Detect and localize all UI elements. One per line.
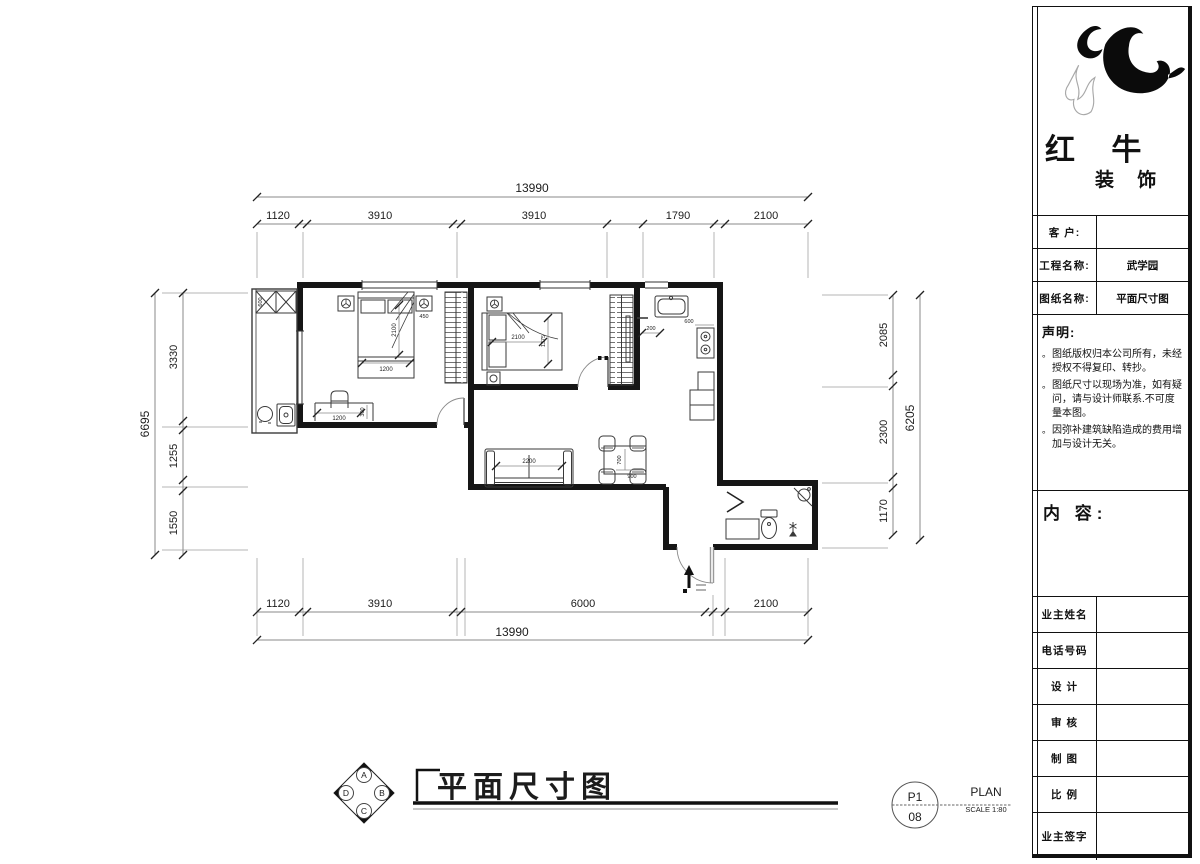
bullet-marker: 。 <box>1042 379 1052 421</box>
customer-value <box>1097 216 1188 248</box>
drawing-name-label: 图纸名称: <box>1033 282 1097 314</box>
dim-label: 2100 <box>392 323 398 337</box>
bathroom-door-symbol <box>727 492 743 512</box>
extension-lines <box>162 232 888 636</box>
content-section: 内 容: <box>1033 491 1188 597</box>
dim-chain-right: 2085 2300 1170 6205 <box>878 291 924 544</box>
drawing-title-block: 平面尺寸图 <box>413 770 838 809</box>
field-scale: 比 例 <box>1033 777 1188 813</box>
dim-label: 2100 <box>754 598 778 610</box>
dim-label: 1550 <box>168 511 180 535</box>
bullet-marker: 。 <box>1042 348 1052 376</box>
dim-chain-left: 6695 3330 1255 1550 <box>138 289 187 559</box>
bed-double-2: 2100 1375 <box>482 313 562 370</box>
dim-chain-top: 13990 1120 3910 3910 1790 2100 <box>253 181 812 228</box>
field-reviewer: 审 核 <box>1033 705 1188 741</box>
sofa: 2200 <box>485 449 573 487</box>
field-drafter: 制 图 <box>1033 741 1188 777</box>
dim-label: 1170 <box>878 499 890 523</box>
statement-item: 。 图纸版权归本公司所有，未经授权不得复印、转抄。 <box>1042 348 1182 376</box>
kitchen-cabinets <box>690 372 714 420</box>
dim-label: 900 <box>627 474 636 480</box>
bed-double: 2100 1200 <box>358 292 414 378</box>
dim-label: 3910 <box>368 598 392 610</box>
field-phone: 电话号码 <box>1033 633 1188 669</box>
dim-label: 1255 <box>168 444 180 468</box>
bullet-marker: 。 <box>1042 424 1052 452</box>
dim-label: 3330 <box>168 345 180 369</box>
wardrobe-bedroom2 <box>610 295 633 385</box>
corner-basin <box>794 488 812 506</box>
dim-label: 6205 <box>903 404 917 431</box>
dim-label: 2200 <box>522 459 536 465</box>
compass-icon: A B C D <box>334 763 394 823</box>
desk-and-chair: 1200 300 <box>313 391 373 422</box>
kitchen: 200 600 <box>637 296 714 420</box>
bull-horn-left <box>1077 26 1102 58</box>
kitchen-sink <box>655 296 688 317</box>
living-room: 2200 700 900 <box>485 436 646 487</box>
toilet <box>761 510 777 539</box>
dim-label: 300 <box>360 407 366 416</box>
field-designer: 设 计 <box>1033 669 1188 705</box>
balcony: 600 <box>252 289 297 433</box>
walls <box>297 282 818 550</box>
dim-label: 6000 <box>571 598 595 610</box>
dim-label: 2100 <box>511 335 525 341</box>
drawing-title: 平面尺寸图 <box>437 771 617 804</box>
sheet-number-block: P1 08 PLAN SCALE 1:80 <box>892 782 1012 828</box>
dim-label: 1120 <box>266 210 290 222</box>
sheet-no-top: P1 <box>908 790 923 804</box>
plan-label: PLAN <box>970 785 1001 799</box>
brand-name: 红 牛 <box>1045 125 1155 169</box>
dim-label: 1200 <box>332 416 346 422</box>
statement-title: 声明: <box>1042 322 1182 341</box>
dim-label: 1375 <box>541 335 547 347</box>
compass-letter-w: D <box>343 788 349 798</box>
bedroom2: 2100 1375 <box>482 295 633 385</box>
stool-2 <box>487 372 500 385</box>
entry-arrow-icon <box>683 565 706 593</box>
dim-label: 13990 <box>495 625 529 639</box>
dim-label: 2085 <box>878 323 890 347</box>
field-owner-signature: 业主签字 <box>1033 813 1188 860</box>
dining-set: 700 900 <box>599 436 646 484</box>
dim-label: 1200 <box>379 367 393 373</box>
dim-chain-bottom: 1120 3910 6000 2100 13990 <box>253 598 812 644</box>
entry-door <box>677 547 714 583</box>
dim-label: 450 <box>419 314 428 320</box>
nightstand-left <box>338 296 354 311</box>
dim-label: 6695 <box>138 410 152 437</box>
field-owner-name: 业主姓名 <box>1033 597 1188 633</box>
dim-label: 600 <box>258 297 264 306</box>
dim-label: 1790 <box>666 210 690 222</box>
statement-item: 。 图纸尺寸以现场为准，如有疑问，请与设计师联系.不可度量本图。 <box>1042 379 1182 421</box>
project-label: 工程名称: <box>1033 249 1097 281</box>
drawing-sheet: 13990 1120 3910 3910 1790 2100 1120 3910… <box>0 0 1200 864</box>
bull-swoosh <box>1103 27 1185 93</box>
dim-label: 2300 <box>878 420 890 444</box>
project-value: 武学园 <box>1097 249 1188 281</box>
flame-outline <box>1066 65 1095 114</box>
dim-label: 1120 <box>266 598 290 610</box>
statement-section: 声明: 。 图纸版权归本公司所有，未经授权不得复印、转抄。 。 图纸尺寸以现场为… <box>1033 315 1188 491</box>
bedroom2-door <box>578 356 608 387</box>
compass-letter-e: B <box>379 788 385 798</box>
compass-letter-n: A <box>361 770 367 780</box>
dim-label: 3910 <box>522 210 546 222</box>
statement-item: 。 因弥补建筑缺陷造成的费用增加与设计无关。 <box>1042 424 1182 452</box>
field-drawing-name: 图纸名称: 平面尺寸图 <box>1033 282 1188 315</box>
laundry-sink <box>258 407 273 424</box>
dim-label: 700 <box>617 455 623 464</box>
wardrobe-bedroom1 <box>445 292 467 383</box>
dim-label: 3910 <box>368 210 392 222</box>
dim-label: 2100 <box>754 210 778 222</box>
dim-label: 13990 <box>515 181 549 195</box>
washing-machine <box>277 404 295 426</box>
bedroom1: 2100 1200 450 1200 300 <box>313 292 467 422</box>
title-block: 红 牛 装 饰 客 户: 工程名称: 武学园 图纸名称: 平面尺寸图 声明: 。… <box>1032 6 1192 858</box>
shower-symbol <box>790 522 797 536</box>
drawing-name-value: 平面尺寸图 <box>1097 282 1188 314</box>
stove: 600 <box>684 319 714 358</box>
dim-label: 200 <box>646 326 655 332</box>
doors <box>437 356 714 593</box>
field-customer: 客 户: <box>1033 216 1188 249</box>
compass-letter-s: C <box>361 806 367 816</box>
field-project: 工程名称: 武学园 <box>1033 249 1188 282</box>
scale-label: SCALE 1:80 <box>965 805 1006 814</box>
nightstand-2 <box>487 297 502 311</box>
customer-label: 客 户: <box>1033 216 1097 248</box>
vanity-cabinet <box>726 519 759 539</box>
nightstand-right: 450 <box>416 296 432 320</box>
brand-subname: 装 饰 <box>1095 165 1165 192</box>
brand-area: 红 牛 装 饰 <box>1033 7 1188 216</box>
bedroom1-door <box>437 398 464 425</box>
dim-label: 600 <box>684 319 693 325</box>
floorplan-canvas: 13990 1120 3910 3910 1790 2100 1120 3910… <box>0 0 1032 864</box>
bathroom <box>726 488 812 539</box>
sheet-no-bottom: 08 <box>908 810 922 824</box>
